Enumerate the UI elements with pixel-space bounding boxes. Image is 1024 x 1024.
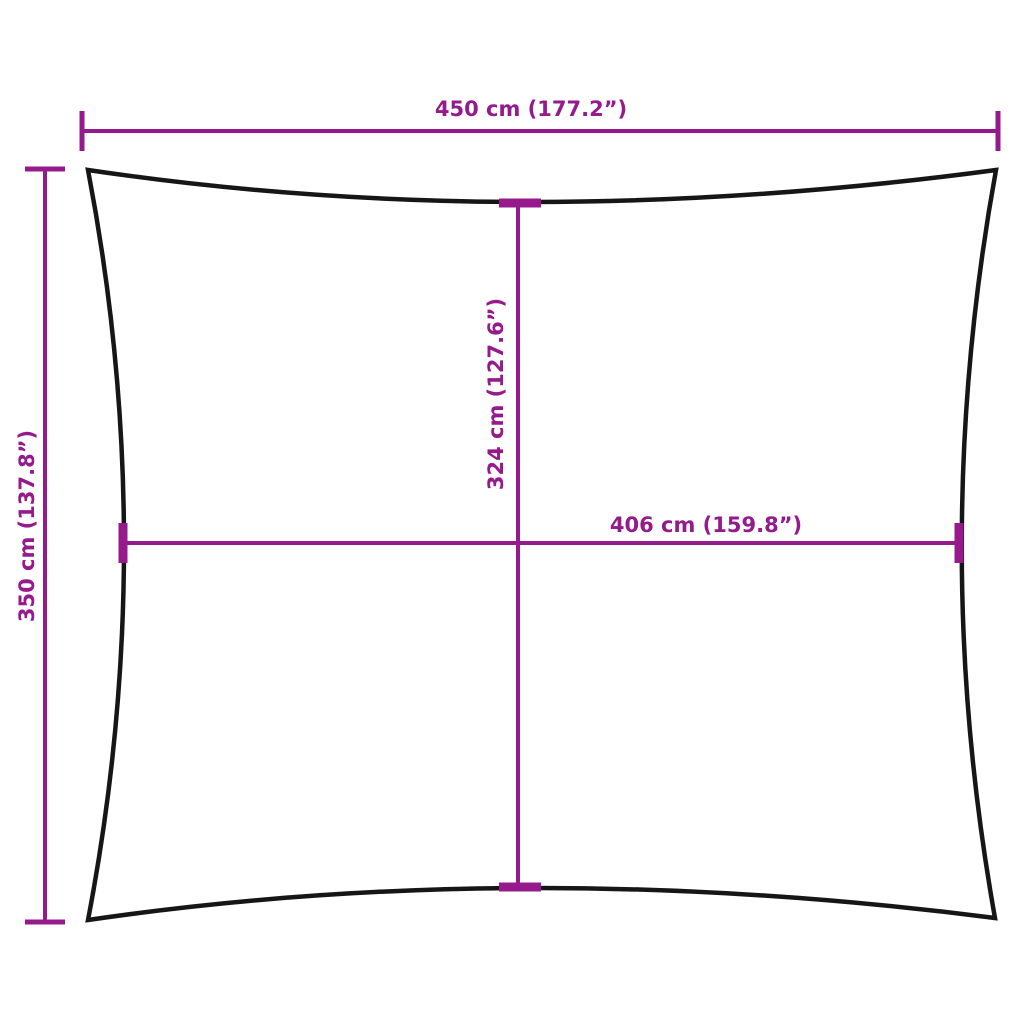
- diagram-canvas: 450 cm (177.2”) 350 cm (137.8”) 324 cm (…: [0, 0, 1024, 1024]
- dimension-label-left: 350 cm (137.8”): [15, 430, 39, 622]
- dimension-label-inner-width: 406 cm (159.8”): [610, 513, 802, 537]
- dimension-label-top: 450 cm (177.2”): [435, 97, 627, 121]
- dimension-label-inner-height: 324 cm (127.6”): [484, 298, 508, 490]
- dimension-inner-width: 406 cm (159.8”): [122, 513, 960, 563]
- dimension-top-width: 450 cm (177.2”): [82, 97, 998, 151]
- dimension-left-height: 350 cm (137.8”): [15, 169, 65, 922]
- product-dimension-diagram: 450 cm (177.2”) 350 cm (137.8”) 324 cm (…: [0, 0, 1024, 1024]
